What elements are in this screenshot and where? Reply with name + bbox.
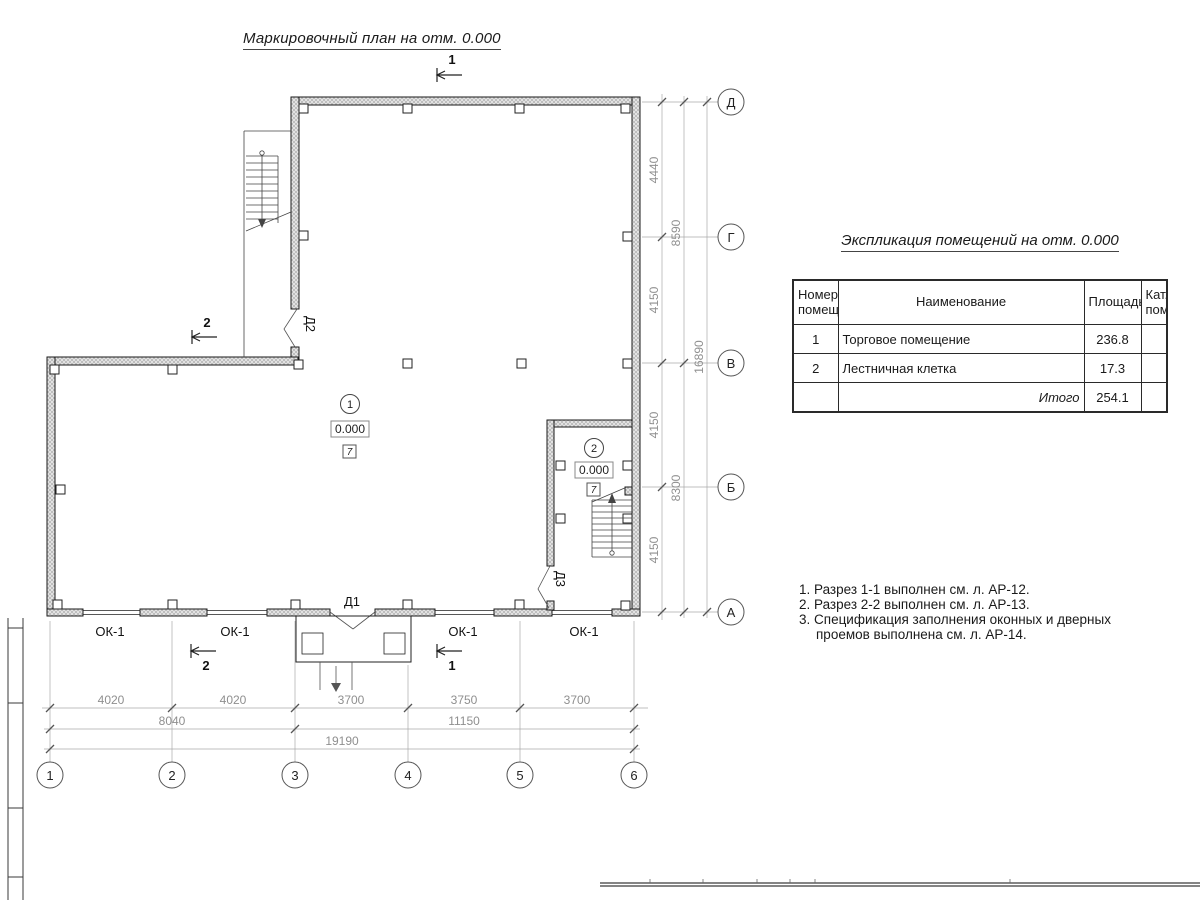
room-area: 17.3 <box>1084 354 1141 383</box>
room-num: 2 <box>793 354 838 383</box>
section-2-label: 2 <box>202 658 209 673</box>
dim-label: 3700 <box>564 693 591 707</box>
dim-label: 8590 <box>669 219 683 246</box>
room-name: Торговое помещение <box>838 325 1084 354</box>
window-label: ОК-1 <box>220 624 249 639</box>
col-header-cat: Кат. пом. <box>1141 280 1167 325</box>
axis-label: Г <box>727 230 734 245</box>
dim-label: 8300 <box>669 474 683 501</box>
window-label: ОК-1 <box>448 624 477 639</box>
axis-bubbles-vertical: Д Г В Б А <box>718 89 744 625</box>
note-line: 2. Разрез 2-2 выполнен см. л. АР-13. <box>799 597 1111 612</box>
room-area: 236.8 <box>1084 325 1141 354</box>
door-leaves <box>284 309 550 629</box>
table-row: 1 Торговое помещение 236.8 <box>793 325 1167 354</box>
room-num: 1 <box>793 325 838 354</box>
section-1-bottom-mark <box>437 644 462 658</box>
window-label: ОК-1 <box>95 624 124 639</box>
room-marker-2: 2 0.000 7 <box>575 439 613 497</box>
axis-label: 5 <box>516 768 523 783</box>
axis-bubbles-horizontal: 1 2 3 4 5 6 <box>37 762 647 788</box>
axis-label: 2 <box>168 768 175 783</box>
explication-title: Экспликация помещений на отм. 0.000 <box>792 232 1168 249</box>
dim-label: 8040 <box>159 714 186 728</box>
walls <box>47 97 640 616</box>
dimension-labels-right: 4440 4150 4150 4150 8590 8300 16890 <box>647 156 706 563</box>
dim-label: 3700 <box>338 693 365 707</box>
dim-label: 16890 <box>692 340 706 374</box>
dim-label: 4150 <box>647 286 661 313</box>
total-label: Итого <box>838 383 1084 413</box>
sheet-frame <box>8 618 1200 900</box>
axis-label: 3 <box>291 768 298 783</box>
notes-block: 1. Разрез 1-1 выполнен см. л. АР-12. 2. … <box>799 582 1111 642</box>
door-d2-leaf <box>284 309 297 347</box>
door-d1-label: Д1 <box>344 594 360 609</box>
section-1-top-mark <box>437 68 462 82</box>
room-number: 1 <box>347 399 353 411</box>
axis-label: 4 <box>404 768 411 783</box>
room-cat <box>1141 325 1167 354</box>
dim-label: 4440 <box>647 156 661 183</box>
dim-label: 3750 <box>451 693 478 707</box>
dim-label: 4150 <box>647 536 661 563</box>
col-header-area: Площадь <box>1084 280 1141 325</box>
explication-block: Экспликация помещений на отм. 0.000 Номе… <box>792 232 1168 413</box>
table-row: 2 Лестничная клетка 17.3 <box>793 354 1167 383</box>
dim-label: 19190 <box>325 734 359 748</box>
room-name: Лестничная клетка <box>838 354 1084 383</box>
note-line: 1. Разрез 1-1 выполнен см. л. АР-12. <box>799 582 1111 597</box>
dim-label: 4150 <box>647 411 661 438</box>
dimension-labels-bottom: 4020 4020 3700 3750 3700 8040 11150 1919… <box>98 693 591 748</box>
room-level: 0.000 <box>335 422 365 436</box>
door-d2-label: Д2 <box>303 316 318 332</box>
section-2-bottom-mark <box>191 644 216 658</box>
drawing-sheet: Маркировочный план на отм. 0.000 <box>0 0 1200 900</box>
table-total-row: Итого 254.1 <box>793 383 1167 413</box>
room-marker-1: 1 0.000 7 <box>331 395 369 459</box>
room-cat <box>1141 354 1167 383</box>
axis-label: Д <box>727 95 736 110</box>
table-header-row: Номер помещ. Наименование Площадь Кат. п… <box>793 280 1167 325</box>
exterior-stair <box>244 131 291 357</box>
section-1-label: 1 <box>448 52 455 67</box>
room-level: 0.000 <box>579 463 609 477</box>
dim-label: 4020 <box>220 693 247 707</box>
explication-table: Номер помещ. Наименование Площадь Кат. п… <box>792 279 1168 413</box>
door-d1-leaves <box>330 612 375 629</box>
col-header-name: Наименование <box>838 280 1084 325</box>
dim-label: 11150 <box>448 714 480 728</box>
axis-label: В <box>727 356 736 371</box>
section-2-label: 2 <box>203 315 210 330</box>
floor-type-mark: 7 <box>591 485 597 496</box>
room-number: 2 <box>591 443 597 455</box>
note-line: проемов выполнена см. л. АР-14. <box>799 627 1111 642</box>
axis-label: Б <box>727 480 736 495</box>
window-label: ОК-1 <box>569 624 598 639</box>
note-line: 3. Спецификация заполнения оконных и две… <box>799 612 1111 627</box>
section-1-label: 1 <box>448 658 455 673</box>
total-area: 254.1 <box>1084 383 1141 413</box>
door-d3-label: Д3 <box>553 571 568 587</box>
axis-label: А <box>727 605 736 620</box>
axis-label: 1 <box>46 768 53 783</box>
axis-label: 6 <box>630 768 637 783</box>
floor-plan-drawing: 4440 4150 4150 4150 8590 8300 16890 4020… <box>0 0 1200 900</box>
col-header-number: Номер помещ. <box>793 280 838 325</box>
section-2-top-mark <box>192 330 217 344</box>
floor-type-mark: 7 <box>347 447 353 458</box>
dim-label: 4020 <box>98 693 125 707</box>
entrance-porch <box>296 616 411 692</box>
